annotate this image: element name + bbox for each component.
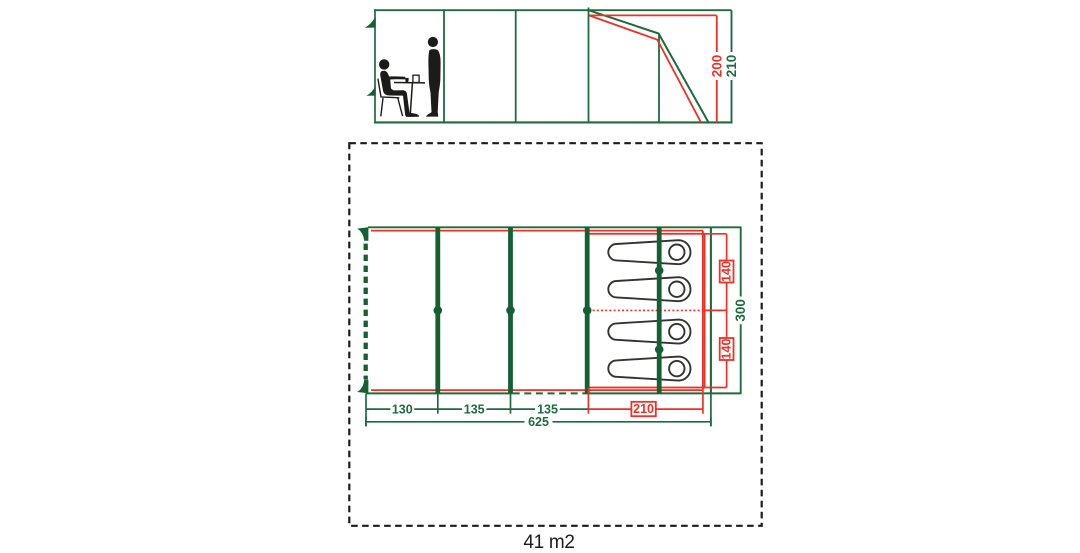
svg-text:625: 625 [528,415,549,429]
svg-text:200: 200 [709,55,724,78]
svg-text:300: 300 [733,299,748,322]
svg-text:41 m2: 41 m2 [523,532,574,553]
svg-text:140: 140 [720,339,734,360]
svg-text:130: 130 [392,402,413,416]
svg-text:210: 210 [724,55,739,78]
svg-text:135: 135 [464,402,485,416]
svg-text:140: 140 [720,261,734,282]
svg-text:210: 210 [633,402,654,416]
